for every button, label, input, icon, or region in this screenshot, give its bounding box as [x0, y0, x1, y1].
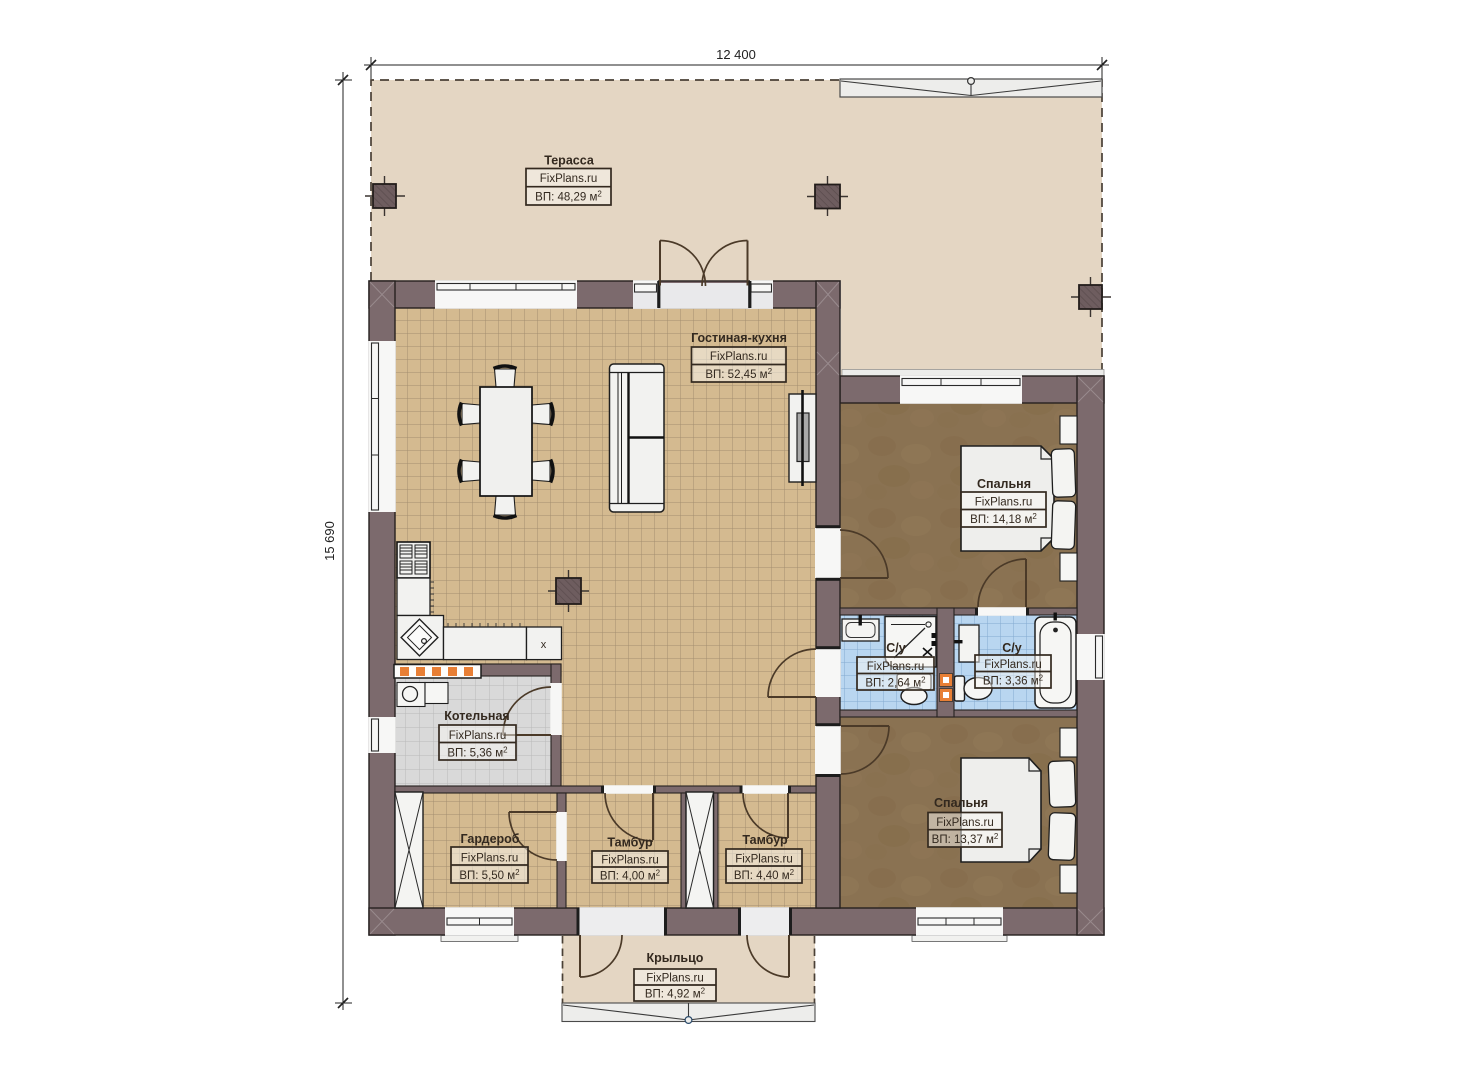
- svg-text:ВП: 14,18 м2: ВП: 14,18 м2: [970, 512, 1037, 526]
- svg-text:12 400: 12 400: [716, 47, 756, 62]
- svg-text:Гардероб: Гардероб: [460, 832, 519, 846]
- svg-text:FixPlans.ru: FixPlans.ru: [936, 817, 994, 829]
- svg-text:Тамбур: Тамбур: [607, 836, 653, 850]
- svg-text:Спальня: Спальня: [977, 477, 1031, 491]
- svg-text:FixPlans.ru: FixPlans.ru: [867, 661, 925, 673]
- svg-text:Спальня: Спальня: [934, 796, 988, 810]
- svg-text:ВП: 48,29 м2: ВП: 48,29 м2: [535, 190, 602, 204]
- svg-text:FixPlans.ru: FixPlans.ru: [735, 854, 793, 866]
- svg-text:Терасса: Терасса: [544, 154, 595, 168]
- svg-text:FixPlans.ru: FixPlans.ru: [710, 351, 768, 363]
- svg-text:ВП: 13,37 м2: ВП: 13,37 м2: [932, 832, 999, 846]
- svg-text:ВП: 4,92 м2: ВП: 4,92 м2: [645, 987, 706, 1001]
- svg-text:FixPlans.ru: FixPlans.ru: [449, 730, 507, 742]
- svg-text:ВП: 3,36 м2: ВП: 3,36 м2: [983, 674, 1044, 688]
- svg-text:FixPlans.ru: FixPlans.ru: [646, 973, 704, 985]
- svg-text:Тамбур: Тамбур: [742, 833, 788, 847]
- svg-text:FixPlans.ru: FixPlans.ru: [540, 173, 598, 185]
- svg-text:x: x: [541, 639, 547, 651]
- svg-text:FixPlans.ru: FixPlans.ru: [984, 659, 1042, 671]
- svg-text:FixPlans.ru: FixPlans.ru: [601, 855, 659, 867]
- svg-text:ВП: 4,40 м2: ВП: 4,40 м2: [734, 868, 795, 882]
- svg-text:ВП: 5,36 м2: ВП: 5,36 м2: [447, 746, 508, 760]
- svg-text:ВП: 2,64 м2: ВП: 2,64 м2: [865, 676, 926, 690]
- svg-text:ВП: 52,45 м2: ВП: 52,45 м2: [705, 367, 772, 381]
- svg-text:FixPlans.ru: FixPlans.ru: [461, 853, 519, 865]
- svg-text:С/у: С/у: [1002, 641, 1022, 655]
- svg-text:Гостиная-кухня: Гостиная-кухня: [691, 331, 787, 345]
- svg-text:FixPlans.ru: FixPlans.ru: [975, 497, 1033, 509]
- svg-text:ВП: 4,00 м2: ВП: 4,00 м2: [600, 869, 661, 883]
- svg-text:Котельная: Котельная: [444, 709, 509, 723]
- svg-text:15 690: 15 690: [322, 521, 337, 561]
- svg-text:Крыльцо: Крыльцо: [647, 951, 704, 965]
- svg-text:ВП: 5,50 м2: ВП: 5,50 м2: [459, 868, 520, 882]
- svg-text:С/у: С/у: [886, 641, 906, 655]
